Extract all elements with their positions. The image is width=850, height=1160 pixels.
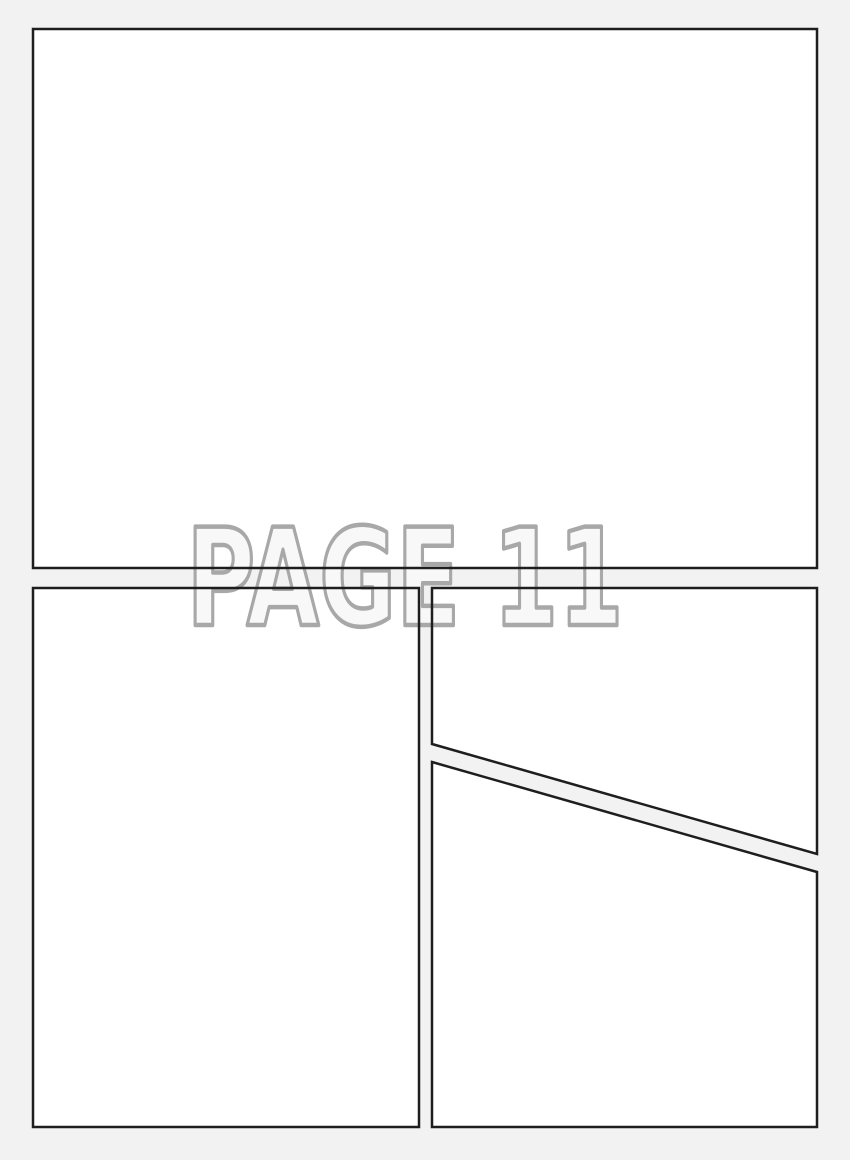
panel-top (33, 29, 817, 568)
panel-bottom-left (33, 588, 419, 1127)
page-label: PAGE 11 (187, 500, 624, 657)
comic-page-canvas: PAGE 11 (0, 0, 850, 1160)
